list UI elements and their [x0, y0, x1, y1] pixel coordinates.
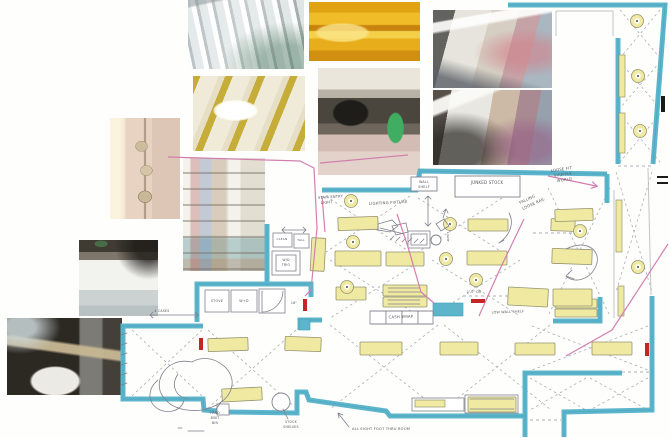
display-fixture: [592, 342, 632, 355]
pencil-sketch: [371, 311, 433, 324]
plan-annotation: WORLD: [556, 176, 572, 183]
ceiling-light-symbol: [632, 70, 645, 83]
plan-wall-edge: [123, 326, 217, 411]
display-fixture: [285, 336, 321, 351]
pencil-sketch: [262, 291, 283, 312]
sketched-box: [465, 395, 518, 413]
ceiling-grid-diagonal: [444, 325, 550, 409]
wall-break-mark: [657, 182, 668, 184]
ceiling-light-symbol: [440, 253, 453, 266]
ceiling-grid-diagonal: [620, 62, 660, 108]
ceiling-light-symbol: [346, 286, 348, 288]
ceiling-light-symbol: [577, 228, 583, 234]
ceiling-grid-diagonal: [208, 330, 296, 408]
plan-annotation: CLEAN: [277, 237, 288, 241]
ceiling-light-symbol: [345, 195, 358, 208]
ceiling-grid-diagonal: [326, 196, 410, 252]
sketched-box: [205, 290, 229, 312]
pencil-sketch: [470, 399, 514, 409]
ceiling-light-symbol: [444, 218, 457, 231]
ceiling-light-symbol: [637, 266, 639, 268]
plan-annotation: TRIO: [281, 263, 291, 267]
plan-annotation: BSKT: [211, 416, 220, 420]
display-fixture: [555, 309, 597, 317]
pencil-sketch: [566, 245, 597, 280]
pencil-sketch: [388, 288, 420, 304]
ceiling-light-symbol: [470, 274, 483, 287]
ceiling-light-symbol: [636, 20, 638, 22]
ceiling-grid-diagonal: [432, 260, 520, 316]
ceiling-grid-diagonal: [530, 378, 586, 410]
ceiling-grid-diagonal: [548, 188, 610, 316]
sketched-box: [231, 290, 257, 312]
design-collage-board: STAIR ENTRYLIGHTLIGHTING FIXTUREWALLSHEL…: [0, 0, 670, 438]
wall-shelf-strip: [618, 286, 624, 316]
plan-annotation: SHELF: [418, 185, 430, 189]
photo-coffered-ceiling: [193, 76, 305, 151]
ceiling-grid-diagonal: [532, 326, 648, 370]
display-fixture: [555, 299, 597, 308]
ceiling-grid-diagonal: [532, 326, 648, 370]
ceiling-grid-diagonal: [132, 330, 202, 396]
plan-wall: [553, 297, 600, 321]
plan-wall: [197, 284, 311, 322]
photo-microwave-shelf: [318, 68, 420, 175]
column-circle: [272, 393, 290, 411]
pencil-sketch: [436, 209, 449, 231]
ceiling-grid-diagonal: [620, 62, 660, 108]
annotation-box: [455, 176, 520, 197]
pencil-sketch: [425, 196, 431, 226]
ceiling-grid-diagonal: [132, 330, 202, 396]
plan-wall: [123, 326, 217, 411]
sketched-box: [294, 234, 309, 248]
display-fixture: [310, 238, 326, 272]
sketched-box: [418, 311, 433, 324]
plan-wall-edge: [553, 297, 600, 321]
ceiling-grid-diagonal: [326, 196, 410, 252]
ceiling-grid-diagonal: [620, 114, 660, 162]
display-fixture: [468, 219, 508, 231]
plan-annotation: JUNKED STOCK: [470, 180, 504, 185]
ceiling-grid-diagonal: [548, 188, 610, 316]
plan-annotation: 18": [291, 301, 297, 305]
plan-annotation: TALL: [296, 238, 305, 242]
ceiling-grid-diagonal: [620, 10, 660, 58]
ceiling-grid-diagonal: [330, 325, 438, 409]
ceiling-grid-diagonal: [208, 330, 296, 408]
plan-wall: [300, 320, 322, 330]
new-door-marker: [471, 299, 485, 303]
plan-wall: [525, 373, 622, 416]
circulation-line: [479, 219, 524, 316]
plan-annotation: CASH WRAP: [389, 314, 414, 320]
sketched-box: [412, 398, 464, 411]
display-fixture: [553, 289, 592, 306]
display-fixture: [440, 342, 478, 355]
ceiling-light-symbol: [579, 230, 581, 232]
ceiling-grid-diagonal: [444, 325, 550, 409]
display-fixture: [336, 287, 366, 300]
sketched-box: [370, 311, 386, 324]
plan-annotation: STOVE: [211, 299, 223, 303]
ceiling-light-symbol: [347, 236, 360, 249]
ceiling-grid-diagonal: [616, 172, 652, 292]
sketched-box: [276, 255, 296, 271]
ceiling-light-symbol: [341, 281, 354, 294]
wall-break-mark: [657, 176, 668, 178]
plan-annotation: LIGHT: [446, 232, 450, 242]
display-fixture: [383, 285, 427, 296]
ceiling-light-symbol: [639, 130, 641, 132]
plan-annotation: FRND: [210, 411, 220, 415]
ceiling-light-symbol: [445, 258, 447, 260]
wall-shelf-strip: [619, 113, 625, 153]
pencil-sketch: [216, 401, 288, 419]
plan-wall-edge: [525, 373, 622, 416]
ceiling-grid-diagonal: [590, 378, 648, 410]
new-door-marker: [199, 338, 203, 350]
photo-store-interior-upper: [433, 10, 552, 88]
ceiling-light-symbol: [634, 125, 647, 138]
sketched-box: [386, 311, 402, 324]
display-fixture: [555, 208, 593, 221]
ceiling-light-symbol: [475, 279, 477, 281]
plan-annotation: LIGHT: [321, 200, 334, 205]
ceiling-light-symbol: [443, 256, 449, 262]
display-fixture: [360, 342, 402, 355]
ceiling-light-symbol: [637, 75, 639, 77]
ceiling-grid-diagonal: [616, 172, 652, 292]
ceiling-light-symbol: [344, 284, 350, 290]
plan-annotation: ALL EIGHT FOOT THRU ROOM: [352, 427, 410, 431]
plan-annotation: LOOSE FIT: [550, 165, 572, 173]
ceiling-grid-diagonal: [418, 198, 502, 252]
sketched-box: [411, 234, 427, 245]
display-fixture: [515, 343, 555, 355]
wall-shelf-strip: [619, 55, 625, 97]
plan-annotation: WALL: [419, 180, 429, 184]
ceiling-grid-diagonal: [590, 378, 648, 410]
photo-store-interior-lower: [433, 90, 552, 165]
wall-shelf-strip: [415, 400, 445, 407]
plan-annotation: LOW WALL SHELF: [492, 309, 525, 314]
plan-annotation: SHUFFLE: [553, 170, 572, 178]
ceiling-light-symbol: [447, 221, 453, 227]
display-fixture: [508, 287, 549, 307]
ceiling-light-symbol: [635, 264, 641, 270]
counter-block: [433, 303, 463, 316]
plan-wall: [228, 392, 525, 437]
sketched-box: [217, 404, 229, 415]
new-door-marker: [303, 299, 307, 311]
photo-orange-ceiling: [309, 2, 420, 61]
plan-annotation: 2'-0" DR: [467, 290, 482, 294]
plan-annotation: W/D: [282, 258, 290, 262]
plan-annotation: W+D: [239, 299, 249, 303]
photo-white-appliances: [79, 240, 158, 316]
plan-annotation: SHELVES: [283, 425, 298, 429]
display-fixture: [552, 248, 592, 264]
column-circle: [431, 235, 441, 245]
ceiling-light-symbol: [348, 198, 354, 204]
ceiling-light-symbol: [350, 200, 352, 202]
photo-basement-laundry: [7, 318, 122, 395]
ceiling-light-symbol: [632, 261, 645, 274]
ceiling-light-symbol: [637, 128, 643, 134]
sketched-box: [402, 311, 418, 324]
pencil-sketch: [159, 358, 232, 410]
pencil-sketch: [378, 220, 408, 235]
plan-wall-edge: [564, 296, 652, 437]
pencil-sketch: [390, 236, 424, 243]
plan-wall-edge: [300, 320, 322, 330]
circulation-line: [548, 176, 596, 186]
display-fixture: [551, 219, 575, 232]
counter-block: [299, 319, 310, 330]
ceiling-grid-diagonal: [330, 325, 438, 409]
pencil-sketch: [282, 227, 306, 233]
ceiling-grid-diagonal: [620, 114, 660, 162]
ceiling-light-symbol: [449, 223, 451, 225]
plan-annotation: LIGHTING FIXTURE: [369, 199, 408, 206]
circulation-line: [322, 196, 325, 232]
plan-annotation: STOCK: [285, 420, 298, 424]
photo-wall-electrical-boxes: [110, 118, 180, 219]
ceiling-grid-diagonal: [330, 260, 422, 318]
sketched-box: [272, 251, 300, 275]
pencil-sketch: [499, 213, 511, 243]
display-fixture: [468, 397, 516, 412]
sketched-box: [273, 233, 292, 247]
plan-wall-edge: [197, 284, 311, 322]
ceiling-light-symbol: [574, 225, 587, 238]
display-fixture: [467, 251, 507, 265]
ceiling-light-symbol: [634, 18, 640, 24]
pencil-sketch: [338, 413, 349, 427]
display-fixture: [208, 337, 248, 351]
annotation-box: [411, 177, 437, 191]
display-fixture: [386, 252, 424, 266]
ceiling-light-symbol: [473, 277, 479, 283]
ceiling-grid-diagonal: [432, 260, 520, 316]
ceiling-light-symbol: [352, 241, 354, 243]
plan-annotation: FALLING: [518, 193, 535, 205]
plan-wall-edge: [228, 392, 525, 437]
photo-ceiling-pipes: [188, 0, 304, 69]
plan-annotation: LOOSE RAIL: [521, 196, 546, 211]
plan-annotation: STAIR ENTRY: [318, 194, 344, 200]
ceiling-light-symbol: [350, 239, 356, 245]
display-fixture: [383, 297, 427, 307]
wall-shelf-strip: [616, 200, 622, 252]
plan-annotation: BIN: [212, 421, 219, 425]
sketched-box: [259, 289, 285, 313]
existing-wall-line: [648, 168, 651, 295]
plan-wall: [564, 296, 652, 437]
ceiling-grid-diagonal: [530, 378, 586, 410]
circulation-line: [397, 214, 434, 303]
photo-stock-shelves: [183, 158, 265, 271]
new-door-marker: [645, 343, 649, 356]
display-fixture: [222, 387, 263, 402]
ceiling-light-symbol: [631, 15, 644, 28]
pencil-sketch: [178, 428, 204, 431]
ceiling-light-symbol: [635, 73, 641, 79]
display-fixture: [335, 251, 381, 266]
sketched-box: [408, 231, 430, 248]
wall-break-mark: [661, 96, 665, 112]
circulation-line: [566, 244, 668, 356]
pencil-sketch: [459, 190, 514, 194]
display-fixture: [338, 216, 378, 230]
pencil-sketch: [150, 380, 184, 412]
ceiling-grid-diagonal: [620, 10, 660, 58]
ceiling-grid-diagonal: [418, 198, 502, 252]
ceiling-grid-diagonal: [330, 260, 422, 318]
